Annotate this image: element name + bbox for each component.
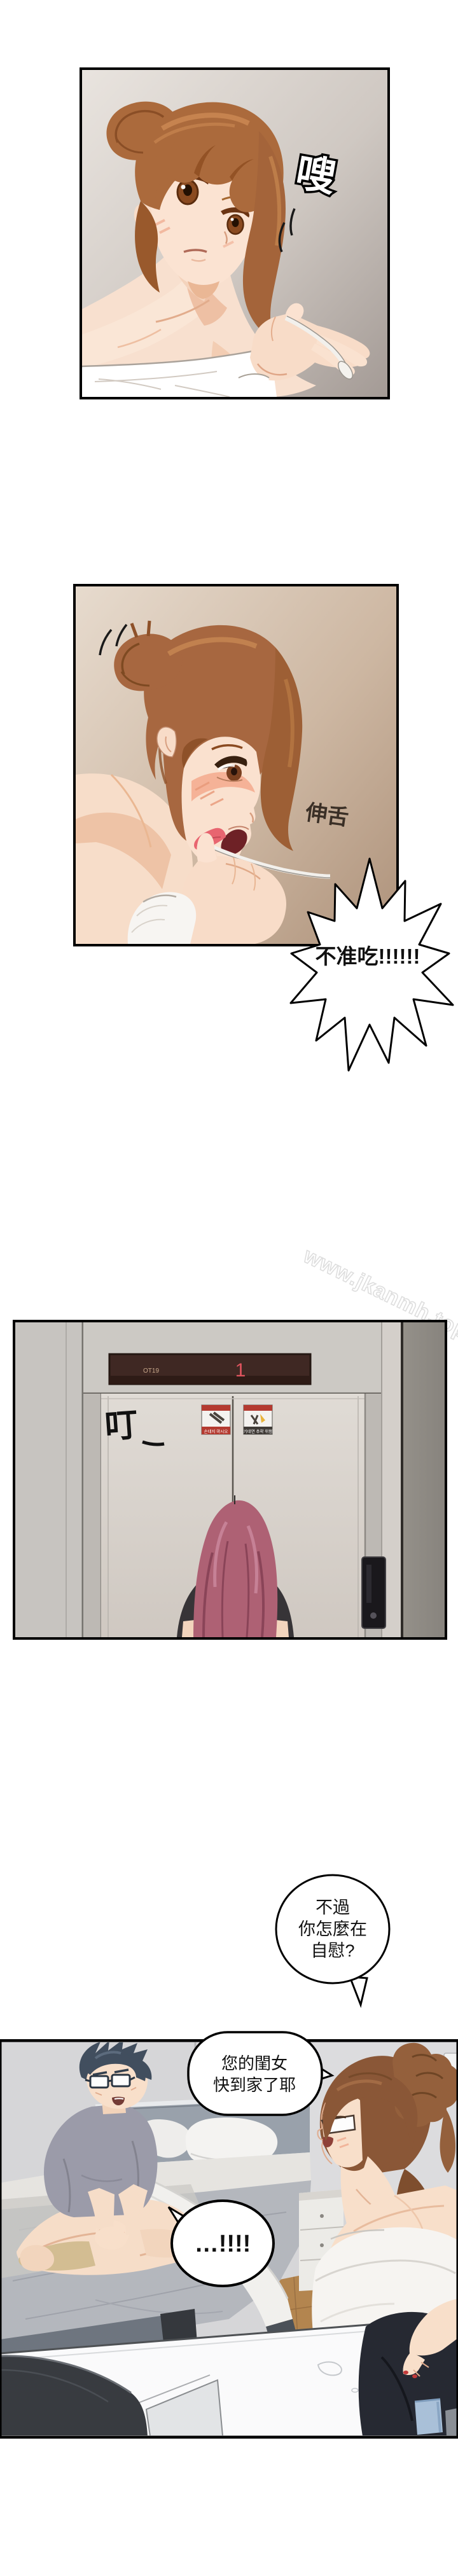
svg-text:不准吃!!!!!!: 不准吃!!!!!!: [316, 945, 420, 968]
svg-text:嗖: 嗖: [293, 150, 339, 200]
svg-text:손대지 마시오: 손대지 마시오: [204, 1429, 228, 1434]
svg-text:您的閨女: 您的閨女: [221, 2054, 288, 2073]
svg-text:1: 1: [235, 1360, 246, 1381]
svg-text:기대면 추락 위험: 기대면 추락 위험: [244, 1429, 272, 1434]
svg-text:…!!!!: …!!!!: [195, 2231, 251, 2257]
svg-text:OT19: OT19: [143, 1368, 159, 1375]
svg-text:不過: 不過: [316, 1898, 350, 1917]
svg-text:你怎麼在: 你怎麼在: [298, 1920, 367, 1939]
svg-text:自慰?: 自慰?: [310, 1941, 354, 1960]
svg-text:快到家了耶: 快到家了耶: [213, 2075, 296, 2095]
svg-text:叮: 叮: [104, 1406, 139, 1445]
